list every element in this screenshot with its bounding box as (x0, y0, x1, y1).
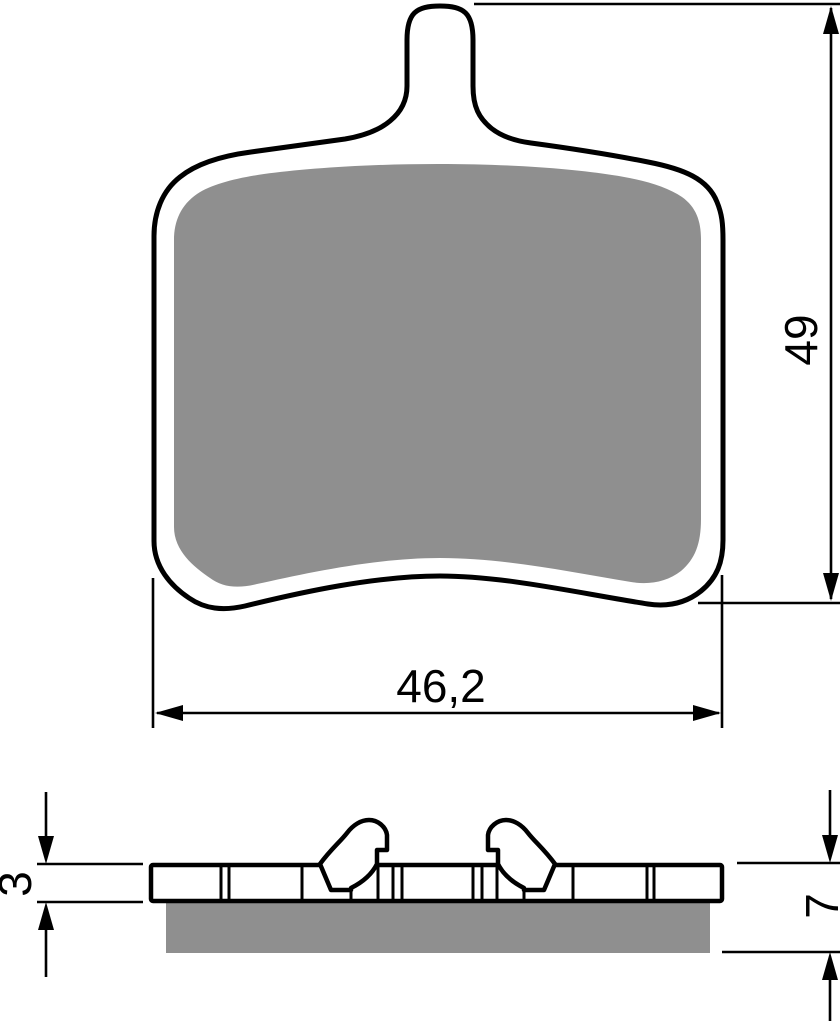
backing-plate-side (151, 865, 722, 901)
dim-height-label: 49 (775, 314, 827, 365)
arrowhead-right (693, 705, 721, 721)
dim-total-thickness: 7 (722, 790, 840, 1021)
arrowhead-down (822, 835, 838, 863)
side-profile-view (151, 820, 722, 953)
arrowhead-up (822, 952, 838, 980)
front-view (154, 6, 723, 609)
arrowhead-up (823, 6, 839, 34)
dim-plate-thickness-label: 3 (0, 871, 41, 897)
dim-pad-width: 46,2 (153, 575, 722, 728)
brake-pad-technical-drawing: 49 46,2 (0, 0, 840, 1024)
friction-block-side (166, 901, 710, 953)
arrowhead-left (155, 705, 183, 721)
dim-plate-thickness: 3 (0, 792, 143, 977)
drawing-canvas: 49 46,2 (0, 0, 840, 1024)
arrowhead-down (823, 573, 839, 601)
dim-width-label: 46,2 (396, 660, 486, 712)
dim-total-thickness-label: 7 (796, 893, 840, 919)
arrowhead-down (38, 836, 54, 864)
arrowhead-up (38, 902, 54, 930)
friction-surface-front (174, 164, 701, 587)
